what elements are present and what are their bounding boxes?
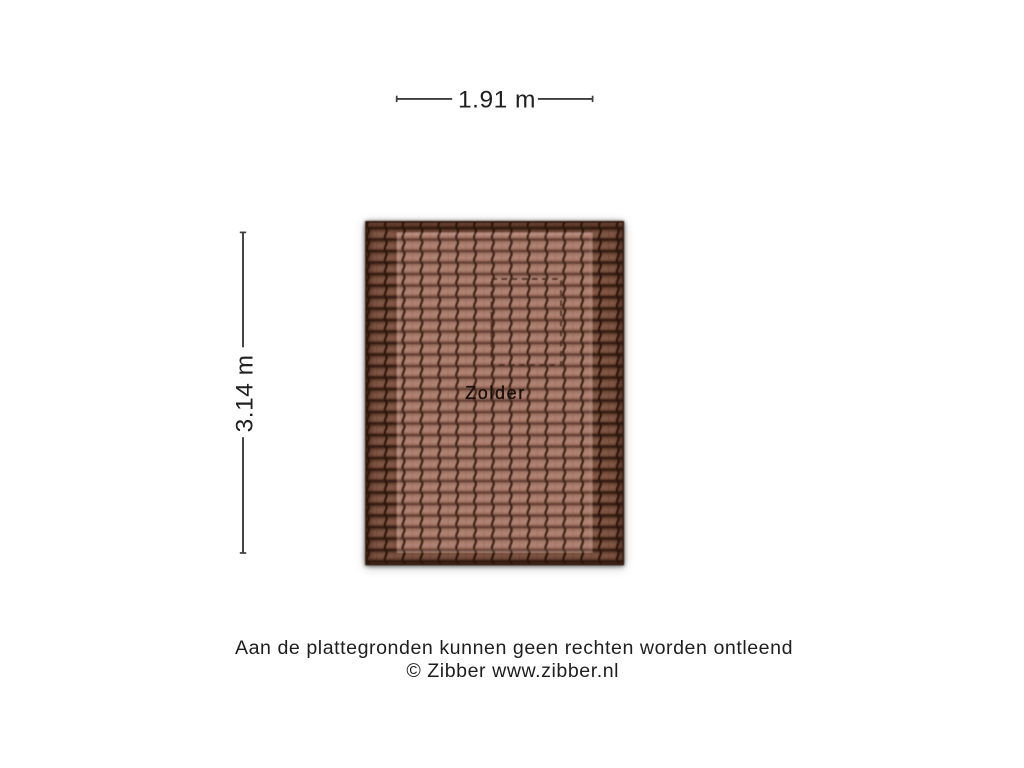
svg-text:1.91 m: 1.91 m <box>458 86 536 113</box>
svg-text:3.14 m: 3.14 m <box>231 354 258 432</box>
svg-text:© Zibber www.zibber.nl: © Zibber www.zibber.nl <box>406 660 619 682</box>
svg-text:Aan de plattegronden kunnen ge: Aan de plattegronden kunnen geen rechten… <box>235 637 793 659</box>
svg-text:Zolder: Zolder <box>465 383 526 403</box>
